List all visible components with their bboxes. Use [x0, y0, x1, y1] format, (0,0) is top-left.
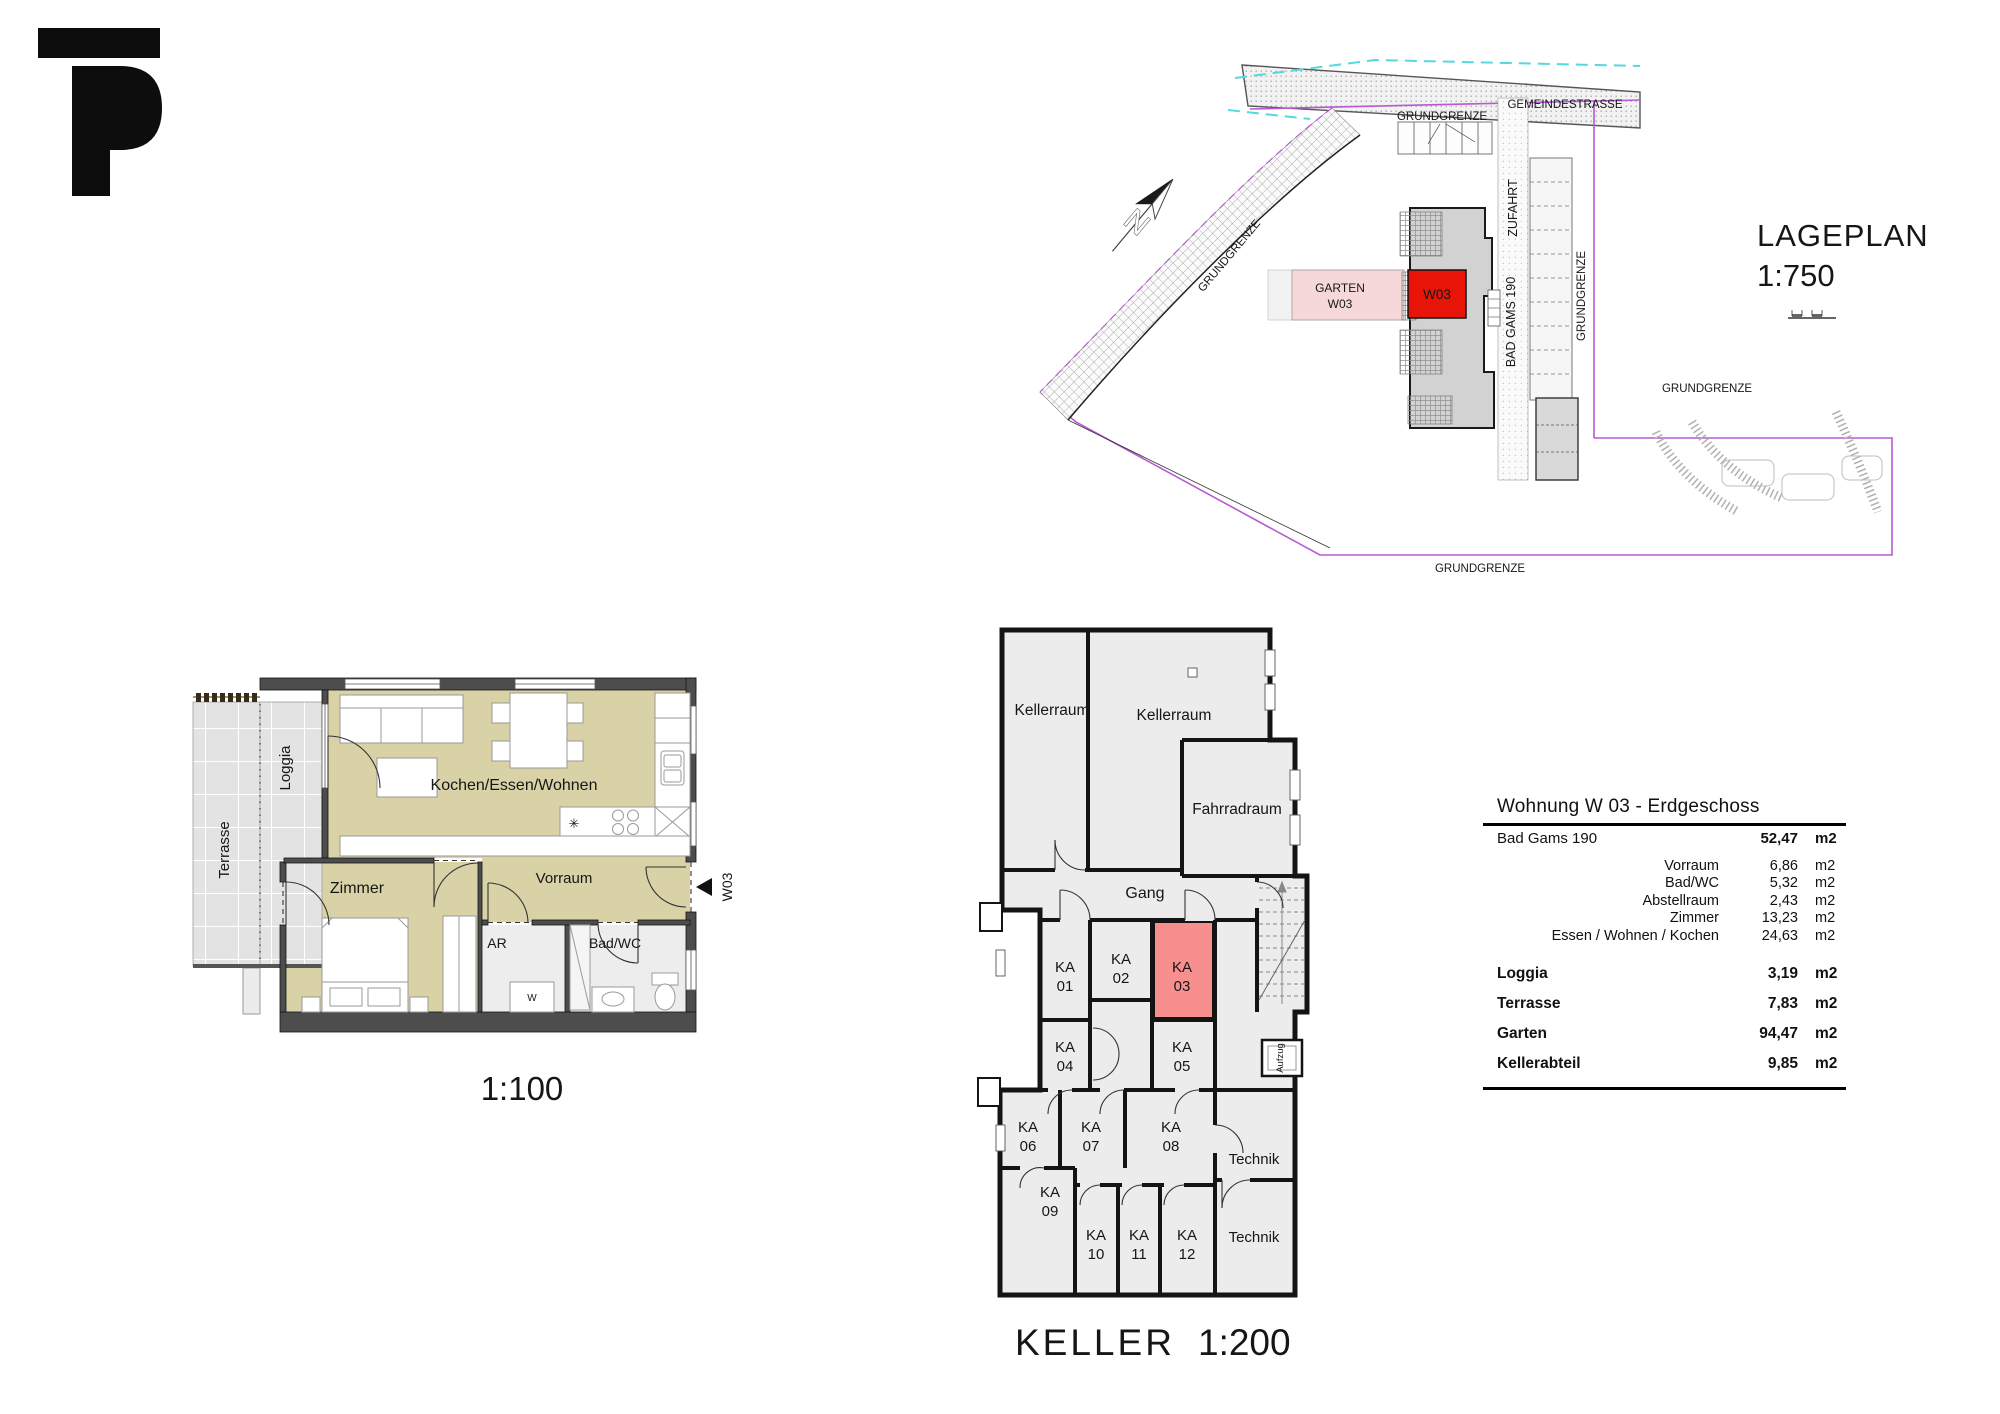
table-row: Loggia 3,19 m2: [1483, 959, 1846, 989]
svg-text:KA: KA: [1055, 959, 1075, 976]
table-row: Garten 94,47 m2: [1483, 1019, 1846, 1049]
table-main-row: Bad Gams 190 52,47 m2: [1483, 828, 1846, 850]
table-row: Essen / Wohnen / Kochen 24,63 m2: [1483, 928, 1846, 945]
label-ar: AR: [487, 935, 506, 951]
address-label: BAD GAMS 190: [1504, 277, 1518, 367]
table-row: Vorraum 6,86 m2: [1483, 858, 1846, 875]
washer-label: W: [527, 993, 537, 1004]
row-value: 13,23: [1719, 910, 1798, 927]
row-label: Abstellraum: [1483, 893, 1719, 910]
building-footprint: GARTEN W03 W03: [1268, 208, 1500, 428]
coffee-table: [377, 758, 437, 797]
entrance-arrow-icon: [696, 878, 712, 896]
svg-text:08: 08: [1163, 1138, 1180, 1155]
north-label: N: [1118, 203, 1156, 242]
mini-scale-bar: [1788, 310, 1836, 318]
grundgrenze-bottom: GRUNDGRENZE: [1435, 563, 1525, 575]
svg-text:02: 02: [1113, 970, 1130, 987]
floorplan-scale: 1:100: [481, 1070, 564, 1107]
row-label: Garten: [1483, 1019, 1719, 1049]
table-row: Bad/WC 5,32 m2: [1483, 875, 1846, 892]
svg-text:05: 05: [1174, 1058, 1191, 1075]
label-loggia: Loggia: [277, 745, 294, 791]
north-arrow-icon: N: [1103, 172, 1182, 259]
row-label: Essen / Wohnen / Kochen: [1483, 928, 1719, 945]
bath-sink: [592, 987, 634, 1012]
row-label: Kellerabteil: [1483, 1049, 1719, 1079]
table-row: Abstellraum 2,43 m2: [1483, 893, 1846, 910]
row-label: Vorraum: [1483, 858, 1719, 875]
label-technik-2: Technik: [1229, 1229, 1280, 1246]
table-rule-bottom: [1483, 1087, 1846, 1090]
svg-text:12: 12: [1179, 1246, 1196, 1263]
svg-text:KA: KA: [1111, 951, 1131, 968]
main-row-value: 52,47: [1719, 828, 1798, 850]
railing: [193, 693, 260, 702]
svg-text:KA: KA: [1172, 1039, 1192, 1056]
lageplan-scale: 1:750: [1757, 258, 1835, 293]
label-vorraum: Vorraum: [536, 870, 593, 887]
row-label: Zimmer: [1483, 910, 1719, 927]
floor-plan: ✳ W: [140, 530, 780, 1120]
svg-text:KA: KA: [1177, 1227, 1197, 1244]
row-unit: m2: [1798, 928, 1846, 945]
svg-text:11: 11: [1131, 1246, 1147, 1263]
label-fahrradraum: Fahrradraum: [1192, 801, 1282, 818]
washing-machine: W: [510, 982, 554, 1012]
street-label: GEMEINDESTRASSE: [1507, 99, 1622, 111]
svg-text:KA: KA: [1018, 1119, 1038, 1136]
row-value: 7,83: [1719, 989, 1798, 1019]
row-label: Loggia: [1483, 959, 1719, 989]
table-row: Terrasse 7,83 m2: [1483, 989, 1846, 1019]
row-label: Bad/WC: [1483, 875, 1719, 892]
label-gang: Gang: [1125, 885, 1164, 902]
grundgrenze-street: GRUNDGRENZE: [1397, 111, 1487, 123]
row-value: 3,19: [1719, 959, 1798, 989]
label-wohnen: Kochen/Essen/Wohnen: [431, 777, 598, 794]
row-unit: m2: [1798, 1049, 1846, 1079]
row-value: 94,47: [1719, 1019, 1798, 1049]
svg-text:06: 06: [1020, 1138, 1037, 1155]
svg-text:07: 07: [1083, 1138, 1100, 1155]
terrace-step: [243, 968, 260, 1014]
row-unit: m2: [1798, 910, 1846, 927]
zufahrt-label: ZUFAHRT: [1506, 179, 1520, 237]
table-rule-top: [1483, 823, 1846, 826]
row-value: 24,63: [1719, 928, 1798, 945]
label-technik-1: Technik: [1229, 1151, 1280, 1168]
architectural-sheet: N GARTEN: [0, 0, 2000, 1414]
table-title: Wohnung W 03 - Erdgeschoss: [1483, 795, 1846, 819]
table-row: Zimmer 13,23 m2: [1483, 910, 1846, 927]
grundgrenze-mid: GRUNDGRENZE: [1662, 383, 1752, 395]
garden-contours: [1656, 412, 1882, 512]
svg-text:KA: KA: [1055, 1039, 1075, 1056]
svg-text:09: 09: [1042, 1203, 1059, 1220]
row-label: Terrasse: [1483, 989, 1719, 1019]
parking-column: [1530, 158, 1572, 400]
svg-text:03: 03: [1174, 978, 1191, 995]
site-plan: N GARTEN: [980, 40, 1920, 585]
keller-title: KELLER: [1015, 1322, 1175, 1363]
svg-text:KA: KA: [1081, 1119, 1101, 1136]
table-bold-rows: Loggia 3,19 m2 Terrasse 7,83 m2 Garten 9…: [1483, 959, 1846, 1079]
lageplan-title: LAGEPLAN: [1757, 218, 1929, 253]
table-sub-rows: Vorraum 6,86 m2 Bad/WC 5,32 m2 Abstellra…: [1483, 858, 1846, 945]
row-unit: m2: [1798, 858, 1846, 875]
svg-text:KA: KA: [1086, 1227, 1106, 1244]
label-bad: Bad/WC: [589, 935, 641, 951]
svg-text:KA: KA: [1129, 1227, 1149, 1244]
slope-hatch: [1040, 108, 1360, 420]
main-row-unit: m2: [1798, 828, 1846, 850]
label-terrasse: Terrasse: [216, 821, 233, 879]
svg-text:KA: KA: [1172, 959, 1192, 976]
svg-text:KA: KA: [1040, 1184, 1060, 1201]
room-vorraum: [482, 858, 690, 922]
sofa: [340, 695, 463, 743]
row-unit: m2: [1798, 893, 1846, 910]
row-value: 9,85: [1719, 1049, 1798, 1079]
label-kellerraum-2: Kellerraum: [1137, 707, 1212, 724]
svg-text:01: 01: [1057, 978, 1074, 995]
svg-text:KA: KA: [1161, 1119, 1181, 1136]
elevator: Aufzug: [1262, 1040, 1302, 1076]
label-zimmer: Zimmer: [330, 880, 385, 897]
row-unit: m2: [1798, 989, 1846, 1019]
row-value: 6,86: [1719, 858, 1798, 875]
area-table: Wohnung W 03 - Erdgeschoss Bad Gams 190 …: [1483, 795, 1846, 1090]
main-row-label: Bad Gams 190: [1483, 828, 1719, 850]
label-kellerraum-1: Kellerraum: [1015, 702, 1090, 719]
row-unit: m2: [1798, 959, 1846, 989]
row-value: 5,32: [1719, 875, 1798, 892]
keller-scale: 1:200: [1198, 1322, 1291, 1363]
logo-p-icon: [38, 28, 162, 196]
table-row: Kellerabteil 9,85 m2: [1483, 1049, 1846, 1079]
wardrobe: [443, 916, 476, 1012]
garten-label-2: W03: [1328, 297, 1353, 311]
row-unit: m2: [1798, 875, 1846, 892]
garten-label: GARTEN: [1315, 281, 1365, 295]
logo: [30, 18, 200, 218]
garten-area: [1292, 270, 1404, 320]
entrance-unit-label: W03: [719, 872, 735, 901]
shower: [570, 925, 590, 1010]
label-aufzug: Aufzug: [1275, 1043, 1286, 1073]
sideboard: [340, 836, 690, 856]
unit-w03-label: W03: [1423, 287, 1451, 302]
loggia-tiles: [260, 702, 322, 966]
parking-block-lower: [1536, 398, 1578, 480]
parking-row-top: [1398, 122, 1492, 154]
grundgrenze-right: GRUNDGRENZE: [1576, 251, 1588, 341]
svg-text:04: 04: [1057, 1058, 1074, 1075]
row-unit: m2: [1798, 1019, 1846, 1049]
svg-text:10: 10: [1088, 1246, 1105, 1263]
row-value: 2,43: [1719, 893, 1798, 910]
keller-plan: Aufzug Kellerraum: [960, 620, 1340, 1390]
svg-text:✳: ✳: [569, 816, 580, 831]
